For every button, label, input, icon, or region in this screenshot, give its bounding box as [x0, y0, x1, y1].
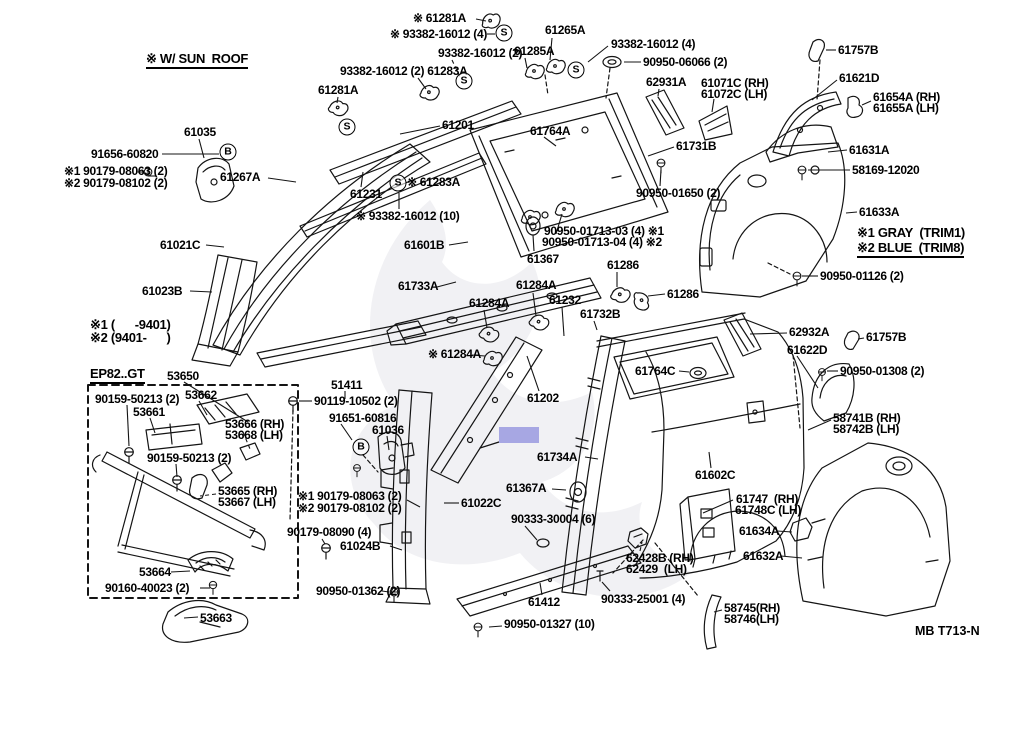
part-label: 61621D — [839, 72, 879, 85]
part-label: 61748C (LH) — [735, 504, 801, 517]
part-label: ※ 61281A — [413, 12, 466, 25]
part-label: 61622D — [787, 344, 827, 357]
part-label: ※1 GRAY (TRIM1) — [857, 226, 965, 240]
part-label: 90950-01327 (10) — [504, 618, 595, 631]
part-label: 61734A — [537, 451, 577, 464]
part-label: 90950-01713-04 (4) ※2 — [542, 236, 662, 249]
part-label: 61281A — [318, 84, 358, 97]
part-label: 93382-16012 (2) — [438, 47, 522, 60]
part-label: 61285A — [514, 45, 554, 58]
part-label: 61732B — [580, 308, 620, 321]
part-label: 61267A — [220, 171, 260, 184]
part-label: ※ 61284A — [428, 348, 481, 361]
part-label: 61633A — [859, 206, 899, 219]
part-label: 90179-08090 (4) — [287, 526, 371, 539]
part-label: 90333-25001 (4) — [601, 593, 685, 606]
part-label: 61733A — [398, 280, 438, 293]
part-label: 61655A (LH) — [873, 102, 939, 115]
part-label: ※ W/ SUN ROOF — [146, 52, 248, 69]
part-label: 61601B — [404, 239, 444, 252]
part-label: 62931A — [646, 76, 686, 89]
part-label: 61201 — [442, 119, 474, 132]
part-label: 90159-50213 (2) — [95, 393, 179, 406]
part-label: ※ 93382-16012 (4) — [390, 28, 487, 41]
part-label: 61412 — [528, 596, 560, 609]
diagram-code: MB T713-N — [915, 624, 980, 638]
part-label: 53663 — [200, 612, 232, 625]
part-label: 90950-01308 (2) — [840, 365, 924, 378]
circled-s-icon: S — [496, 25, 513, 42]
part-label: 61036 — [372, 424, 404, 437]
part-label: 61764C — [635, 365, 675, 378]
part-label: 90950-01650 (2) — [636, 187, 720, 200]
part-label: ※2 BLUE (TRIM8) — [857, 241, 964, 258]
part-label: 61072C (LH) — [701, 88, 767, 101]
part-label: 58742B (LH) — [833, 423, 899, 436]
part-label: 90950-01362 (2) — [316, 585, 400, 598]
part-label: 61284A — [469, 297, 509, 310]
part-label: 61284A — [516, 279, 556, 292]
part-label: 61231 — [350, 188, 382, 201]
part-label: ※2 90179-08102 (2) — [64, 177, 167, 190]
part-label: ※2 (9401- ) — [90, 331, 171, 345]
part-label: 51411 — [331, 379, 362, 392]
circled-s-icon: S — [390, 175, 407, 192]
part-label: 61632A — [743, 550, 783, 563]
part-label: 62429 (LH) — [626, 563, 687, 576]
part-label: 93382-16012 (2) 61283A — [340, 65, 468, 78]
part-label: 61367 — [527, 253, 559, 266]
part-label: 62932A — [789, 326, 829, 339]
part-label: 90950-06066 (2) — [643, 56, 727, 69]
part-label: ※ 93382-16012 (10) — [356, 210, 459, 223]
part-label: 61202 — [527, 392, 559, 405]
part-label: 61286 — [667, 288, 699, 301]
part-label: 53662 — [185, 389, 217, 402]
part-label: 90950-01126 (2) — [820, 270, 904, 283]
part-label: 61757B — [838, 44, 878, 57]
part-label: ※ 61283A — [407, 176, 460, 189]
part-label: 58169-12020 — [852, 164, 919, 177]
part-label: 61631A — [849, 144, 889, 157]
part-label: 61367A — [506, 482, 546, 495]
part-label: 61021C — [160, 239, 200, 252]
part-label: 53650 — [167, 370, 199, 383]
part-label: ※2 90179-08102 (2) — [298, 502, 401, 515]
part-label: 61764A — [530, 125, 570, 138]
part-label: 61731B — [676, 140, 716, 153]
part-label: 91656-60820 — [91, 148, 158, 161]
circled-s-icon: S — [339, 119, 356, 136]
part-label: 90160-40023 (2) — [105, 582, 189, 595]
part-label: 90119-10502 (2) — [314, 395, 398, 408]
part-label: 61232 — [549, 294, 581, 307]
part-label: 61024B — [340, 540, 380, 553]
part-label: 61286 — [607, 259, 639, 272]
part-label: 53664 — [139, 566, 171, 579]
part-label: 61757B — [866, 331, 906, 344]
circled-b-icon: B — [353, 439, 370, 456]
parts-diagram-page: ※ W/ SUN ROOF※ 61281A※ 93382-16012 (4)93… — [0, 0, 1024, 734]
part-label: 53667 (LH) — [218, 496, 276, 509]
part-label: 61022C — [461, 497, 501, 510]
circled-b-icon: B — [220, 144, 237, 161]
part-label: 61265A — [545, 24, 585, 37]
part-label: 61602C — [695, 469, 735, 482]
labels-layer: ※ W/ SUN ROOF※ 61281A※ 93382-16012 (4)93… — [0, 0, 1024, 734]
circled-s-icon: S — [568, 62, 585, 79]
part-label: 61023B — [142, 285, 182, 298]
circled-s-icon: S — [456, 73, 473, 90]
part-label: 61634A — [739, 525, 779, 538]
part-label: 90159-50213 (2) — [147, 452, 231, 465]
part-label: 61035 — [184, 126, 216, 139]
part-label: 90333-30004 (6) — [511, 513, 595, 526]
part-label: 58746(LH) — [724, 613, 779, 626]
part-label: 53668 (LH) — [225, 429, 283, 442]
part-label: 93382-16012 (4) — [611, 38, 695, 51]
part-label: EP82..GT — [90, 367, 145, 384]
part-label: 53661 — [133, 406, 165, 419]
